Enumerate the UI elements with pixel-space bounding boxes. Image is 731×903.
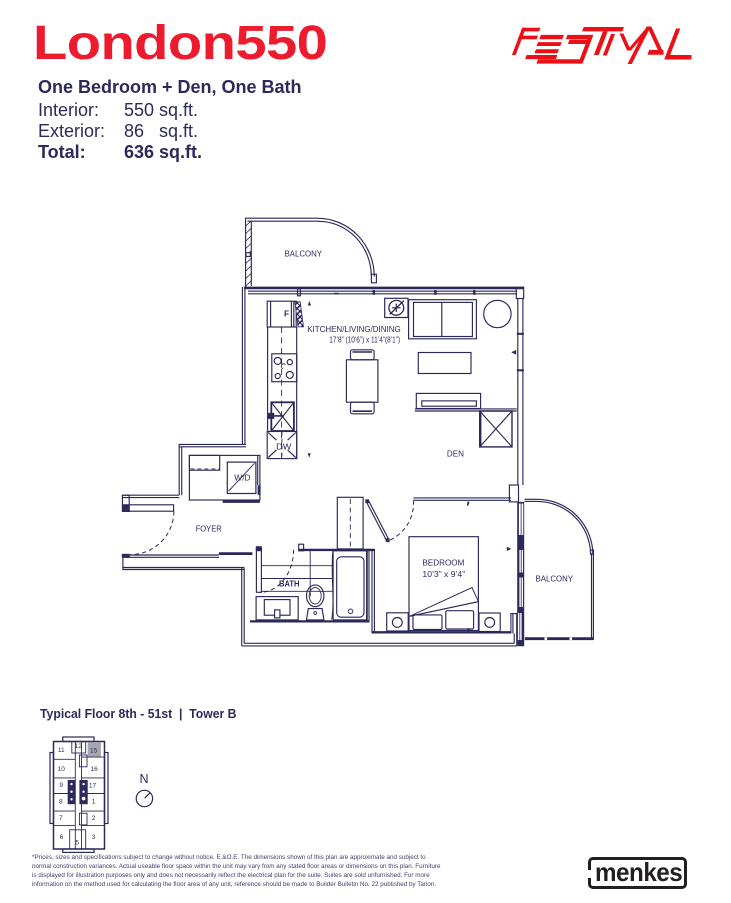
svg-text:15: 15 [90, 748, 98, 755]
svg-text:DW: DW [276, 442, 292, 451]
svg-text:FOYER: FOYER [196, 525, 222, 534]
svg-text:5: 5 [75, 840, 79, 847]
svg-text:BEDROOM: BEDROOM [422, 558, 464, 567]
svg-text:BALCONY: BALCONY [536, 575, 574, 584]
svg-text:17’8” (10’6”) x 11’4”(8’1”): 17’8” (10’6”) x 11’4”(8’1”) [329, 336, 400, 345]
svg-text:KITCHEN/LIVING/DINING: KITCHEN/LIVING/DINING [307, 325, 401, 334]
svg-text:10: 10 [58, 766, 66, 773]
svg-text:1: 1 [92, 798, 96, 805]
svg-text:F: F [284, 309, 289, 318]
svg-text:8: 8 [59, 798, 63, 805]
svg-text:11: 11 [58, 747, 65, 754]
svg-text:DEN: DEN [447, 450, 464, 459]
svg-text:3: 3 [92, 834, 96, 841]
svg-text:9: 9 [59, 782, 63, 789]
svg-text:7: 7 [59, 815, 63, 822]
svg-text:6: 6 [60, 834, 64, 841]
svg-text:17: 17 [89, 782, 97, 789]
svg-text:10’3” x 9’4”: 10’3” x 9’4” [422, 570, 465, 579]
svg-text:BALCONY: BALCONY [285, 250, 323, 259]
svg-text:16: 16 [90, 766, 98, 773]
svg-text:2: 2 [92, 815, 96, 822]
svg-text:BATH: BATH [279, 580, 300, 589]
svg-text:N: N [139, 772, 148, 786]
svg-text:12: 12 [75, 743, 83, 750]
svg-text:W/D: W/D [234, 473, 251, 482]
